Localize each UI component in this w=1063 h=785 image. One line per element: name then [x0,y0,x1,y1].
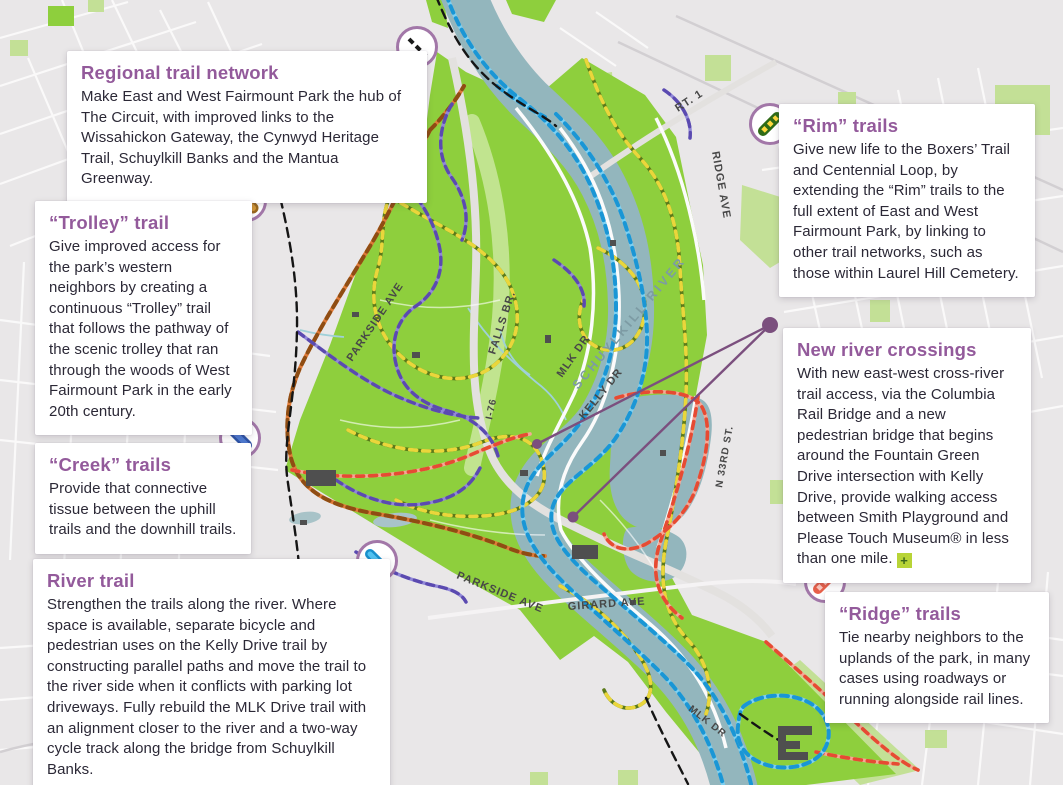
callout-body: Strengthen the trails along the river. W… [47,595,376,780]
callout-title: Regional trail network [81,62,413,83]
callout-body: Provide that connective tissue between t… [49,479,237,541]
callout-new-river-crossings: New river crossings With new east-west c… [783,328,1031,583]
new-river-crossings-dot [762,317,778,333]
callout-body: Give new life to the Boxers’ Trail and C… [793,140,1021,284]
callout-title: “Trolley” trail [49,212,238,233]
callout-ridge-trails: “Ridge” trails Tie nearby neighbors to t… [825,592,1049,723]
callout-river-trail: River trail Strengthen the trails along … [33,559,390,785]
callout-trolley-trail: “Trolley” trail Give improved access for… [35,201,252,435]
callout-title: River trail [47,570,376,591]
callout-creek-trails: “Creek” trails Provide that connective t… [35,443,251,554]
crossing-point-pedestrian-bridge [568,512,579,523]
callout-body: Tie nearby neighbors to the uplands of t… [839,628,1035,710]
crossing-point-columbia-bridge [532,439,542,449]
plus-icon: + [897,553,912,568]
callout-title: “Ridge” trails [839,603,1035,624]
callout-body: With new east-west cross-river trail acc… [797,364,1017,569]
callout-body: Make East and West Fairmount Park the hu… [81,87,413,190]
callout-body: Give improved access for the park’s west… [49,237,238,422]
callout-rim-trails: “Rim” trails Give new life to the Boxers… [779,104,1035,297]
callout-title: “Creek” trails [49,454,237,475]
callout-body-text: With new east-west cross-river trail acc… [797,365,1009,567]
trail-plan-infographic: FALLS BR. RT. 1 RIDGE AVE PARKSIDE AVE M… [0,0,1063,785]
callout-regional-trail-network: Regional trail network Make East and Wes… [67,51,427,203]
callout-title: New river crossings [797,339,1017,360]
callout-title: “Rim” trails [793,115,1021,136]
